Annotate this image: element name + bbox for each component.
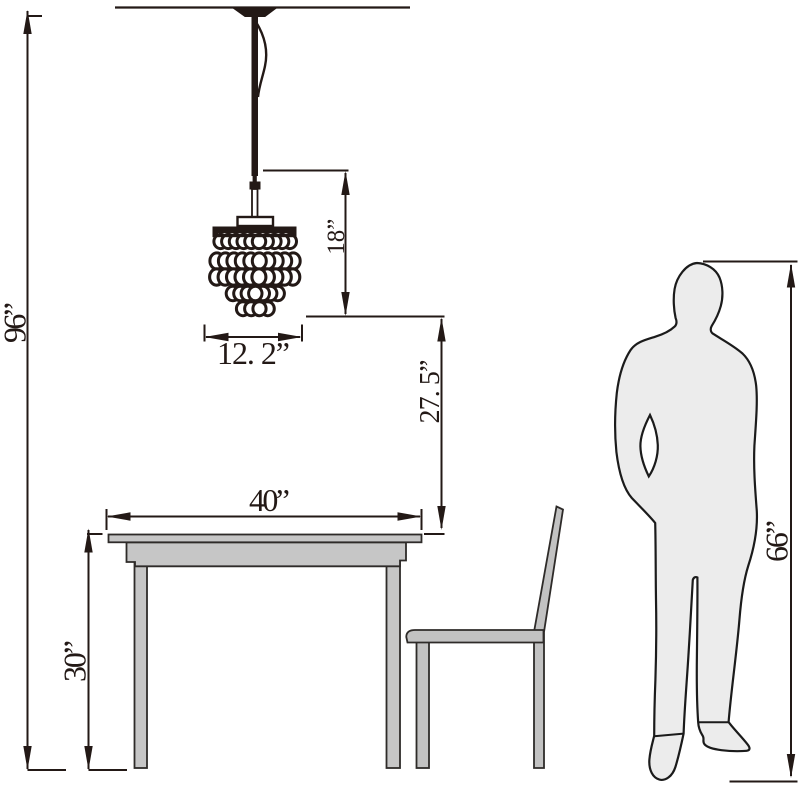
svg-text:96”: 96” [0,302,33,343]
svg-text:12. 2”: 12. 2” [217,335,290,371]
svg-text:18”: 18” [323,219,350,255]
svg-text:30”: 30” [57,640,93,682]
svg-text:66”: 66” [759,520,795,562]
svg-text:27. 5”: 27. 5” [415,360,446,424]
svg-text:40”: 40” [249,482,290,518]
